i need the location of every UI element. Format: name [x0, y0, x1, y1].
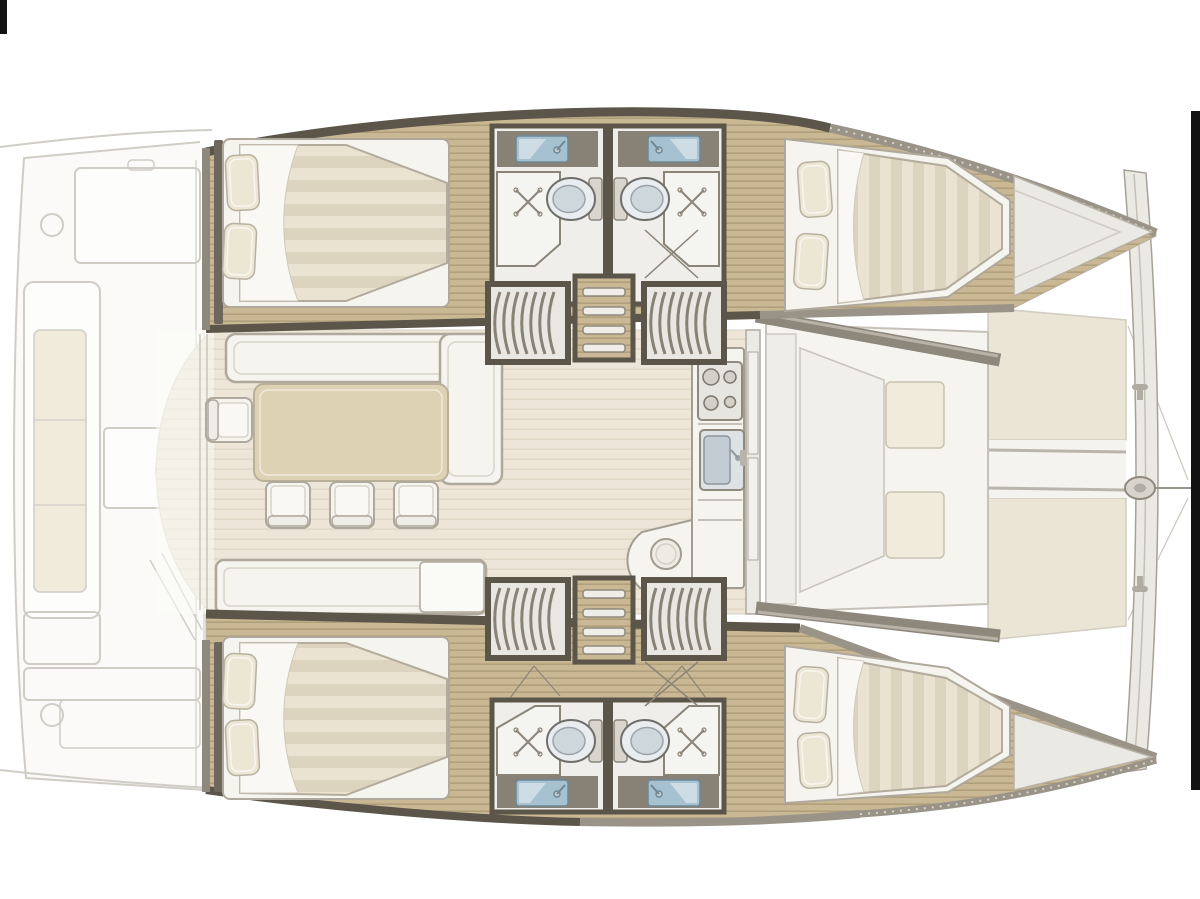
fwd-bed-mattress: [838, 658, 1002, 795]
cockpit-locker: [75, 168, 200, 263]
corner-artifact: [0, 0, 7, 34]
door-swings: [510, 306, 706, 338]
door-handle: [740, 450, 747, 466]
galley-stool-ring: [656, 544, 676, 564]
fwd-bed-sheet: [838, 150, 864, 303]
table-edge: [260, 390, 442, 475]
davit-lines: [150, 553, 202, 640]
sofa-top-cushion: [234, 342, 494, 374]
stbd-hull-floor: [206, 614, 1156, 822]
bowsprit-fitting: [1125, 477, 1155, 499]
washbasin: [516, 136, 568, 162]
door-swings: [510, 666, 706, 698]
port-hull: [202, 112, 1156, 362]
pillow: [797, 161, 833, 218]
floorplan-drawing: [0, 0, 1200, 899]
sink-faucet-arm: [731, 450, 738, 458]
stove: [698, 362, 742, 420]
shower-drain-icon: [678, 188, 706, 216]
heads-block: [492, 126, 724, 304]
saloon: [156, 313, 1000, 639]
aft-bed-mattress: [240, 145, 447, 301]
burner-1: [703, 369, 719, 385]
coachroof-edge-upper-hl: [758, 313, 998, 356]
forward-door-upper: [748, 352, 758, 454]
chair-3: [394, 482, 438, 528]
cockpit-outline: [14, 142, 205, 790]
pillow: [793, 666, 829, 723]
curved-stairs: [488, 580, 568, 658]
aft-bed-sheet: [240, 643, 298, 793]
pillow: [793, 233, 829, 290]
washbasin: [516, 780, 568, 806]
washbasin: [648, 780, 700, 806]
hull-aft-cap: [202, 148, 210, 330]
forward-crossbeam: [1124, 170, 1158, 772]
saloon-floor: [156, 330, 758, 614]
toilet: [547, 720, 602, 762]
bow-rail-top: [830, 128, 1156, 233]
fwd-bed-mattress: [838, 150, 1002, 303]
hull-aft-cap: [202, 640, 210, 792]
aft-bed-frame: [223, 139, 449, 307]
aft-bed-mattress: [240, 643, 447, 795]
seat-cushion-upper: [886, 382, 944, 448]
trampoline-lower: [988, 498, 1126, 640]
galley-sink: [700, 430, 744, 490]
bow-rail-bottom: [860, 760, 1156, 814]
hull-wall-bottom: [206, 315, 760, 329]
aft-door-fade: [156, 330, 214, 614]
aft-bulkhead: [196, 160, 204, 788]
chair-2: [330, 482, 374, 528]
chair-1: [266, 482, 310, 528]
shower-drain-icon: [514, 188, 542, 216]
pillow: [797, 732, 833, 789]
headboard-wall: [214, 140, 223, 324]
shower-drain-icon: [514, 728, 542, 756]
cleat-upper-stem: [1137, 390, 1143, 400]
aft-cockpit: [0, 130, 212, 790]
trampoline-upper: [988, 308, 1126, 440]
headboard-wall: [214, 642, 223, 792]
winch-fwd: [41, 704, 63, 726]
cleat-lower-stem: [1137, 576, 1143, 586]
sink-basin: [704, 436, 730, 484]
wardrobe: [645, 662, 698, 706]
bow-locker: [1014, 714, 1152, 790]
coachroof-edge-lower-hl: [758, 612, 998, 639]
forward-bulkhead: [746, 330, 760, 614]
forward-seating: [766, 324, 988, 612]
companionway-ladder: [575, 276, 633, 360]
transom-steps: [60, 700, 200, 748]
cockpit-cleat: [128, 160, 154, 170]
burner-3: [704, 396, 718, 410]
crossbeam-line: [1134, 174, 1146, 768]
fwd-bed-frame: [785, 646, 1010, 803]
catamaran-floorplan: [0, 0, 1200, 899]
cleat-lower: [1132, 586, 1148, 592]
forward-seating-back: [766, 334, 796, 604]
shower-right: [664, 172, 719, 266]
cleat-upper: [1132, 384, 1148, 390]
washbasin: [648, 136, 700, 162]
sink-faucet: [735, 455, 741, 461]
hull-wall-top: [206, 112, 830, 152]
vanity-right: [618, 131, 719, 167]
toilet: [547, 178, 602, 220]
walkway-beams: [988, 450, 1126, 490]
chair-4: [206, 398, 252, 442]
forward-door-lower: [748, 458, 758, 560]
shower-left: [497, 172, 560, 266]
aft-bed-frame: [223, 637, 449, 799]
toilet: [614, 720, 669, 762]
transom-beam: [24, 668, 200, 700]
burner-4: [725, 397, 736, 408]
toilet: [614, 178, 669, 220]
sofa-top: [226, 334, 502, 382]
sofa-arm: [440, 334, 502, 484]
vanity-left: [497, 776, 598, 808]
wardrobe: [645, 230, 698, 278]
shower-left: [497, 706, 560, 775]
companionway-ladder: [575, 578, 633, 662]
fwd-bed-frame: [785, 139, 1010, 311]
bench-end: [24, 612, 100, 664]
winch-aft: [41, 214, 63, 236]
galley-counter: [692, 348, 744, 588]
port-hull-floor: [206, 112, 1156, 329]
seating-pit: [800, 348, 884, 592]
heads-center-wall: [603, 700, 613, 812]
bow-rail-top: [800, 628, 1156, 757]
sofa-arm-cushion: [448, 342, 494, 476]
curved-stairs: [644, 284, 724, 362]
bow-rail-hatch: [830, 128, 1156, 233]
galley-cabinet-lines: [698, 424, 742, 520]
coachroof-edge-upper: [756, 316, 1000, 360]
shower-right: [664, 706, 719, 775]
pillow: [222, 223, 257, 280]
bench-cushion: [34, 330, 86, 592]
stern-line-bottom: [0, 770, 210, 788]
trampoline-lacing: [1128, 326, 1188, 620]
hull-wall-bottom: [206, 790, 580, 822]
sofa-bottom: [216, 560, 486, 614]
burner-2: [724, 371, 736, 383]
pillow: [225, 154, 260, 211]
dining-table: [254, 384, 448, 481]
bow-locker-line: [1014, 190, 1120, 278]
vanity-left: [497, 131, 598, 167]
bow-locker: [1014, 176, 1152, 296]
vanity-right: [618, 776, 719, 808]
curved-stairs: [644, 580, 724, 658]
hull-wall-top: [206, 614, 800, 628]
starboard-hull: [202, 578, 1156, 823]
pillow: [225, 719, 260, 776]
fwd-bed-sheet: [838, 658, 864, 795]
cockpit-table: [104, 428, 164, 508]
bow-rail-hatch: [860, 760, 1156, 814]
galley-stool: [651, 539, 681, 569]
sofa-bottom-cushion: [224, 568, 478, 606]
foredeck-walkway: [988, 440, 1126, 498]
cushion-seams: [34, 420, 86, 505]
pillow: [222, 653, 257, 710]
seat-cushion-lower: [886, 492, 944, 558]
foredeck: [766, 170, 1191, 772]
right-edge-artifact: [1191, 111, 1200, 790]
shower-drain-icon: [678, 728, 706, 756]
bowsprit-pin: [1134, 484, 1146, 493]
heads-block: [492, 700, 724, 812]
stern-line-top: [0, 130, 212, 147]
hull-wall-bottom-fwd: [760, 308, 1014, 315]
nav-seat: [420, 562, 484, 612]
aft-sliding-door: [200, 334, 207, 610]
curved-stairs: [488, 284, 568, 362]
galley-curved-counter: [627, 520, 692, 588]
aft-bed-sheet: [240, 145, 298, 301]
hull-wall-bottom-mid: [580, 814, 860, 823]
cockpit-bench: [24, 282, 100, 618]
coachroof-edge-lower: [756, 608, 1000, 636]
heads-center-wall: [603, 126, 613, 304]
